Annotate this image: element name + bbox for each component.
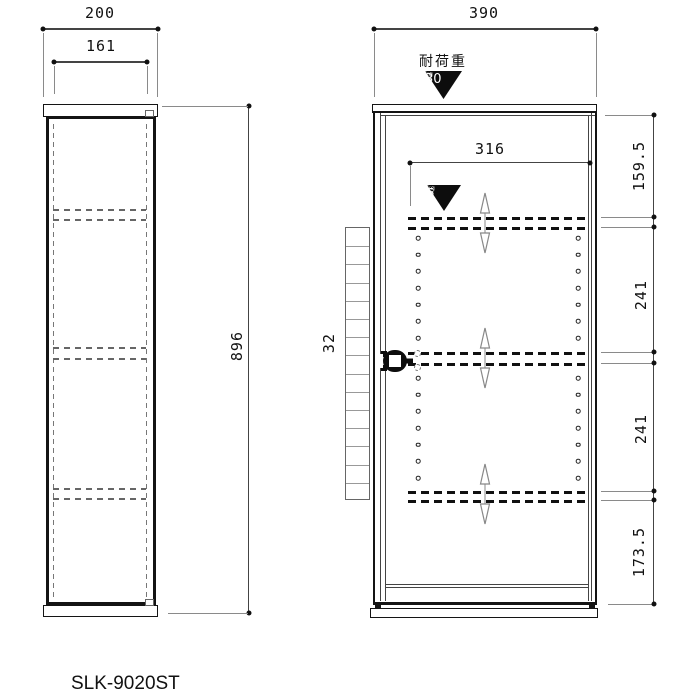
dim-label-segment-3: 241: [633, 414, 650, 444]
side-view-door-hidden-line-left: [53, 124, 55, 601]
front-shelf-2-bottom-dashed: [408, 363, 590, 366]
dim-chain-line: [653, 115, 654, 604]
dim-ext-line: [601, 500, 653, 501]
dim-label-side-inner-width: 161: [86, 39, 116, 54]
wall-rail-slot-line: [346, 355, 369, 356]
dim-ext-line: [601, 491, 653, 492]
dim-ext-line: [147, 66, 148, 94]
side-view-body: [46, 116, 156, 605]
front-view-top-cap: [372, 104, 597, 113]
dim-dot: [651, 350, 656, 355]
model-number-label: SLK-9020ST: [71, 674, 180, 693]
dim-dot: [651, 602, 656, 607]
side-shelf-2-bottom-dashed: [53, 358, 146, 360]
wall-rail-slot-line: [346, 246, 369, 247]
front-shelf-3-bottom-dashed: [408, 500, 590, 503]
dim-dot: [52, 60, 57, 65]
side-view-door-hidden-line-right: [146, 124, 148, 601]
wall-rail-slot-line: [346, 283, 369, 284]
load-capacity-label: 耐荷重: [419, 55, 467, 69]
front-shelf-1-bottom-dashed: [408, 227, 590, 230]
dim-ext-line: [168, 613, 248, 614]
dim-ext-line: [157, 33, 158, 97]
dim-label-side-overall-height: 896: [229, 331, 246, 361]
dim-dot: [588, 161, 593, 166]
dim-line-896: [248, 106, 249, 613]
wall-rail-slot-line: [346, 428, 369, 429]
dim-label-side-overall-width: 200: [85, 6, 115, 21]
dim-line-390: [374, 28, 596, 30]
dim-line-316: [410, 162, 590, 163]
dim-dot: [156, 27, 161, 32]
wall-rail-slot-line: [346, 319, 369, 320]
dim-ext-line: [596, 33, 597, 97]
wall-rail-slot-line: [346, 392, 369, 393]
wall-rail-slot-line: [346, 465, 369, 466]
technical-drawing-canvas: 200 161 896: [0, 0, 700, 700]
hinge-knob-icon: [380, 344, 414, 378]
dim-line-161: [54, 61, 147, 63]
shelf-adjust-arrow-icon: [477, 463, 493, 525]
front-bottom-panel-line-2: [386, 587, 588, 588]
hinge-screw-hole-bottom: [414, 364, 421, 371]
dim-dot: [145, 60, 150, 65]
dim-ext-line: [43, 33, 44, 97]
dim-label-front-overall-width: 390: [469, 6, 499, 21]
wall-rail-slot-line: [346, 374, 369, 375]
dim-dot: [651, 113, 656, 118]
dim-ext-line: [601, 227, 653, 228]
load-capacity-triangle-icon: 30 kg: [425, 71, 462, 99]
front-door-edge-right: [588, 115, 589, 601]
load-capacity-value: 30: [425, 73, 442, 86]
dim-dot: [41, 27, 46, 32]
front-view-bottom-cap: [370, 608, 598, 618]
shelf-adjust-arrow-icon: [477, 192, 493, 254]
shelf-adjust-arrow-icon: [477, 327, 493, 389]
dim-dot: [594, 27, 599, 32]
dim-ext-line: [54, 66, 55, 94]
dim-dot: [651, 498, 656, 503]
wall-rail-slot-line: [346, 264, 369, 265]
dim-ext-line: [162, 106, 248, 107]
dim-ext-line: [601, 217, 653, 218]
side-shelf-3-bottom-dashed: [53, 498, 146, 500]
front-inner-top-line: [380, 115, 595, 116]
side-hinge-mark-bottom: [145, 599, 154, 606]
dim-dot: [651, 225, 656, 230]
load-capacity-unit: kg: [425, 71, 433, 78]
side-hinge-mark-top: [145, 110, 154, 117]
front-shelf-2-top-dashed: [408, 352, 590, 355]
dim-ext-line: [601, 363, 653, 364]
side-shelf-1-bottom-dashed: [53, 219, 146, 221]
dim-label-rail-offset: 32: [321, 333, 338, 353]
side-shelf-1-top-dashed: [53, 209, 146, 211]
dim-dot: [651, 489, 656, 494]
dim-ext-line: [608, 604, 653, 605]
wall-rail-slot-line: [346, 410, 369, 411]
side-shelf-2-top-dashed: [53, 347, 146, 349]
front-shelf-1-top-dashed: [408, 217, 590, 220]
front-bottom-panel-line-1: [386, 584, 588, 585]
dim-label-segment-4: 173.5: [631, 527, 648, 577]
dim-dot: [372, 27, 377, 32]
side-view-bottom-cap: [43, 605, 158, 617]
dim-label-front-inner-width: 316: [475, 142, 505, 157]
wall-rail-slot-line: [346, 483, 369, 484]
front-shelf-3-top-dashed: [408, 491, 590, 494]
side-shelf-3-top-dashed: [53, 488, 146, 490]
dim-dot: [408, 161, 413, 166]
wall-rail-slot-line: [346, 301, 369, 302]
dim-label-segment-1: 159.5: [631, 141, 648, 191]
dim-dot: [651, 361, 656, 366]
wall-rail-slot-line: [346, 446, 369, 447]
dim-ext-line: [410, 166, 411, 206]
wall-rail: [345, 227, 370, 500]
hinge-screw-hole-top: [414, 350, 421, 357]
dim-ext-line: [374, 33, 375, 97]
wall-rail-slot-line: [346, 337, 369, 338]
dim-label-segment-2: 241: [633, 280, 650, 310]
dim-ext-line: [601, 352, 653, 353]
dim-ext-line: [605, 115, 653, 116]
front-frame-inner-line-right-1: [591, 113, 592, 601]
dim-dot: [651, 215, 656, 220]
dim-line-200: [43, 28, 158, 30]
